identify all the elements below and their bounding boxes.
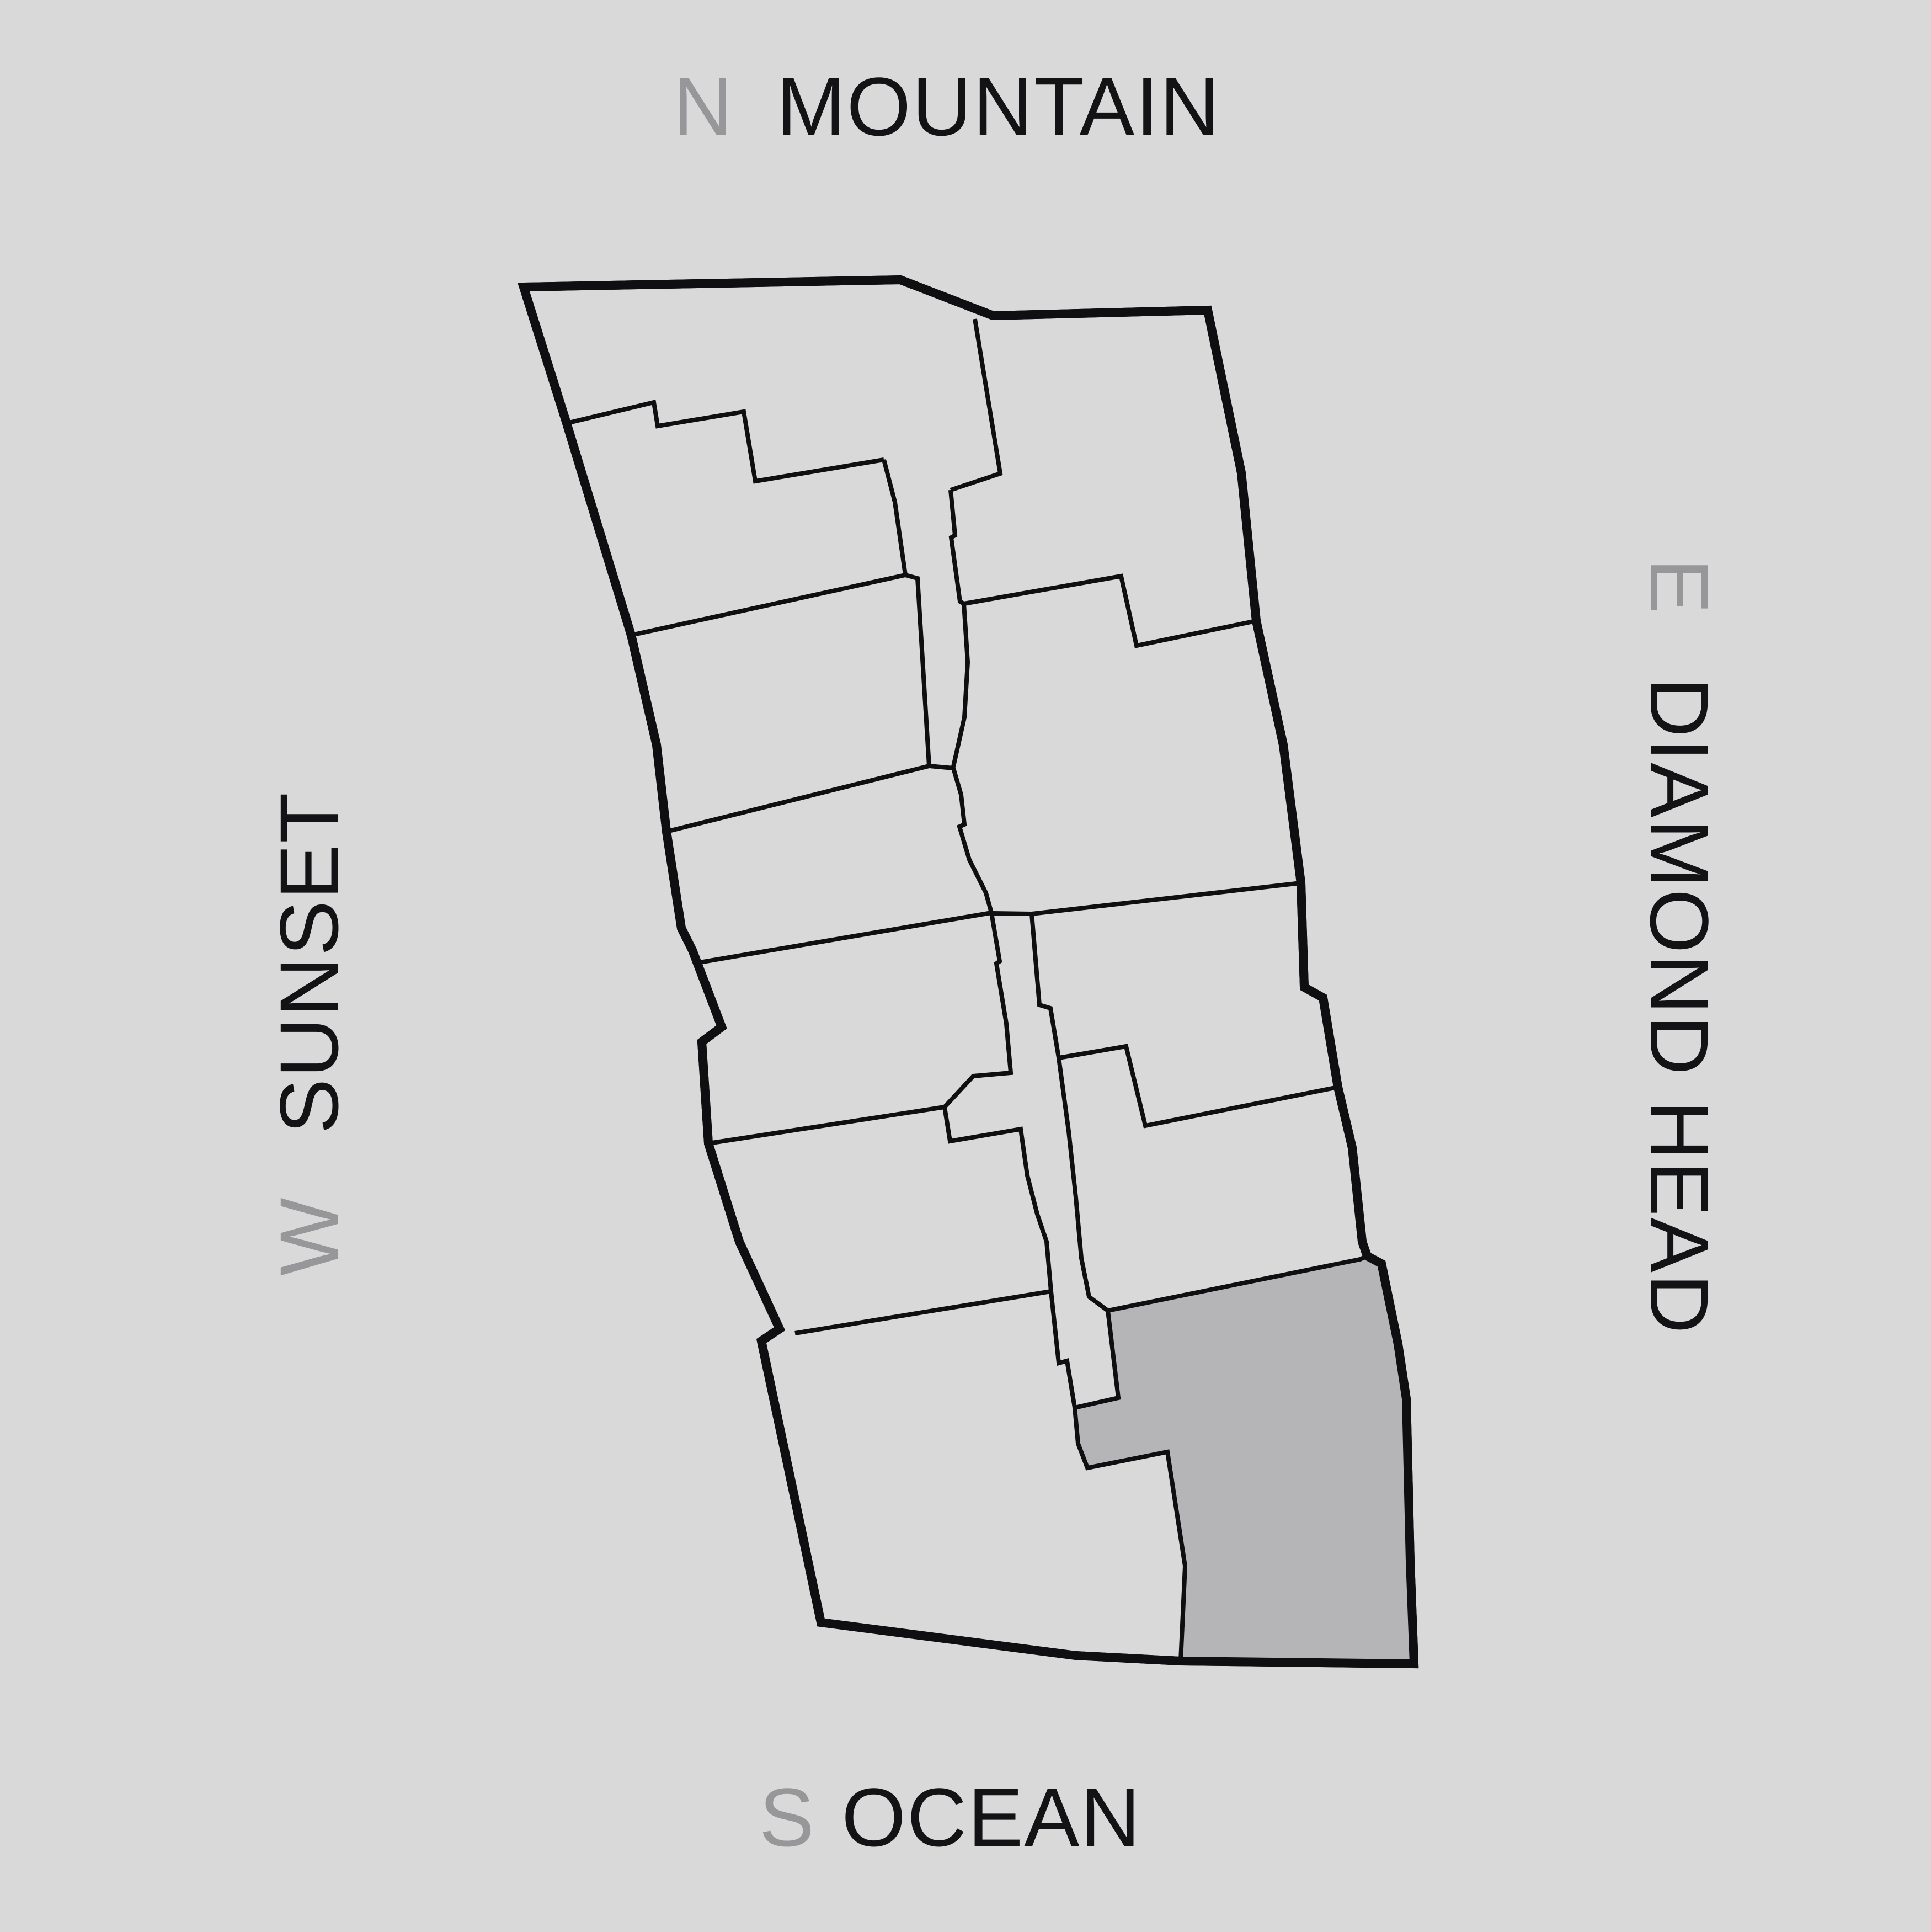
page: N MOUNTAIN S OCEAN W SUNSET E DIAMOND HE…	[0, 0, 1931, 1932]
label-east-word: DIAMOND HEAD	[1633, 678, 1726, 1335]
label-north-word: MOUNTAIN	[777, 60, 1221, 153]
label-west-word: SUNSET	[263, 791, 355, 1133]
label-west-letter: W	[263, 1196, 355, 1276]
label-south-letter: S	[759, 1771, 815, 1864]
label-north-letter: N	[673, 60, 734, 153]
label-south-word: OCEAN	[841, 1771, 1141, 1864]
district-map: N MOUNTAIN S OCEAN W SUNSET E DIAMOND HE…	[0, 0, 1931, 1932]
label-west: W SUNSET	[263, 791, 355, 1276]
label-east: E DIAMOND HEAD	[1633, 558, 1726, 1335]
label-east-letter: E	[1633, 558, 1726, 615]
